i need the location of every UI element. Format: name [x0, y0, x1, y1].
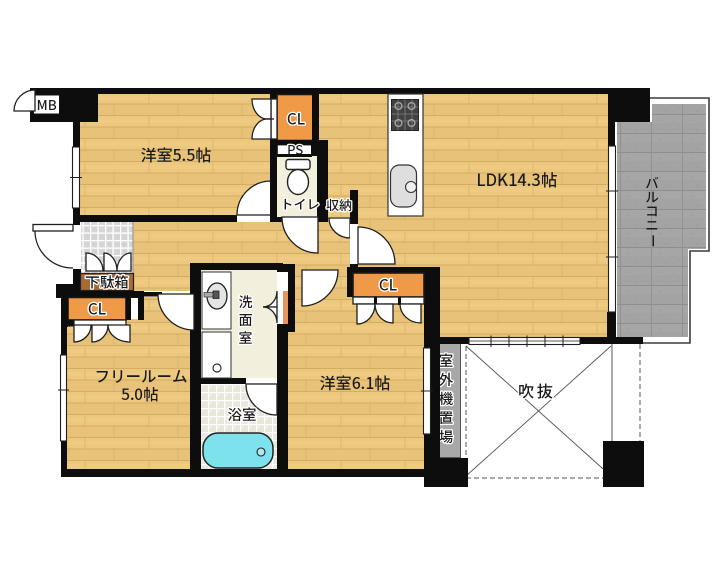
svg-text:面: 面 [239, 310, 253, 330]
svg-text:CL: CL [88, 298, 107, 320]
svg-text:機: 機 [439, 388, 454, 409]
svg-text:場: 場 [439, 426, 454, 447]
svg-text:吹抜: 吹抜 [518, 378, 556, 402]
svg-text:浴室: 浴室 [228, 404, 257, 425]
svg-text:LDK14.3帖: LDK14.3帖 [477, 167, 558, 191]
svg-text:MB: MB [36, 94, 57, 114]
svg-text:ニ: ニ [645, 214, 659, 234]
svg-text:CL: CL [287, 108, 306, 130]
svg-text:置: 置 [439, 407, 454, 428]
svg-text:トイレ: トイレ [280, 194, 319, 213]
svg-text:収納: 収納 [326, 195, 352, 214]
svg-text:洗: 洗 [239, 292, 254, 312]
svg-text:洋室6.1帖: 洋室6.1帖 [320, 370, 391, 394]
svg-text:ー: ー [644, 234, 664, 248]
svg-text:洋室5.5帖: 洋室5.5帖 [141, 142, 212, 166]
svg-text:下駄箱: 下駄箱 [85, 272, 129, 293]
svg-text:外: 外 [438, 369, 454, 390]
svg-text:5.0帖: 5.0帖 [120, 383, 159, 405]
svg-text:CL: CL [379, 274, 398, 296]
svg-text:室: 室 [239, 328, 253, 348]
svg-text:室: 室 [439, 350, 454, 371]
